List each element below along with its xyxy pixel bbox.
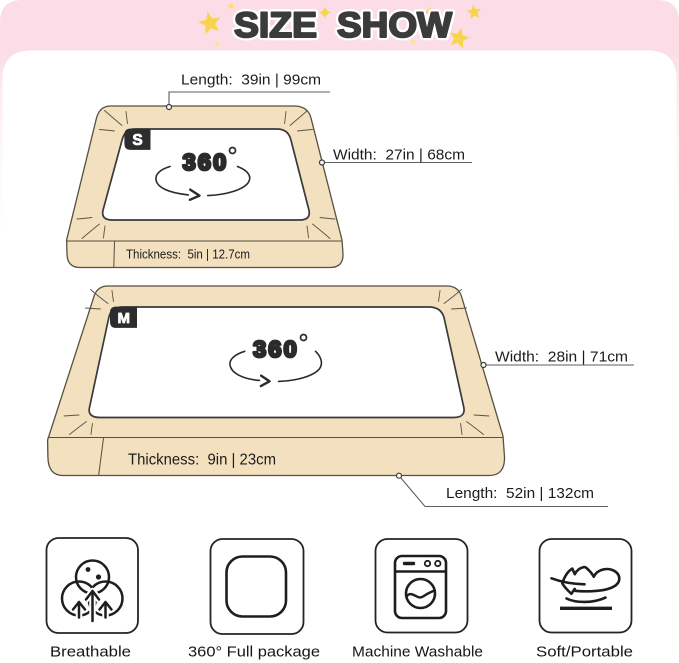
svg-text:Width: 28in | 71cm: Width: 28in | 71cm <box>495 349 628 366</box>
svg-text:Breathable: Breathable <box>50 644 131 661</box>
svg-text:M: M <box>117 310 130 327</box>
svg-text:360: 360 <box>183 149 229 175</box>
svg-text:Machine Washable: Machine Washable <box>352 644 483 661</box>
svg-text:SIZE: SIZE <box>234 6 317 45</box>
svg-text:Thickness: 5in | 12.7cm: Thickness: 5in | 12.7cm <box>126 247 250 262</box>
svg-text:360° Full package: 360° Full package <box>188 644 320 661</box>
svg-text:360: 360 <box>253 336 299 362</box>
svg-text:Length: 52in | 132cm: Length: 52in | 132cm <box>446 485 594 502</box>
svg-text:SHOW: SHOW <box>337 6 452 45</box>
svg-text:Width: 27in | 68cm: Width: 27in | 68cm <box>333 147 465 164</box>
svg-text:Length: 39in | 99cm: Length: 39in | 99cm <box>181 72 321 89</box>
svg-text:Soft/Portable: Soft/Portable <box>536 644 633 661</box>
svg-text:Thickness: 9in | 23cm: Thickness: 9in | 23cm <box>128 452 276 469</box>
svg-text:S: S <box>132 132 142 149</box>
